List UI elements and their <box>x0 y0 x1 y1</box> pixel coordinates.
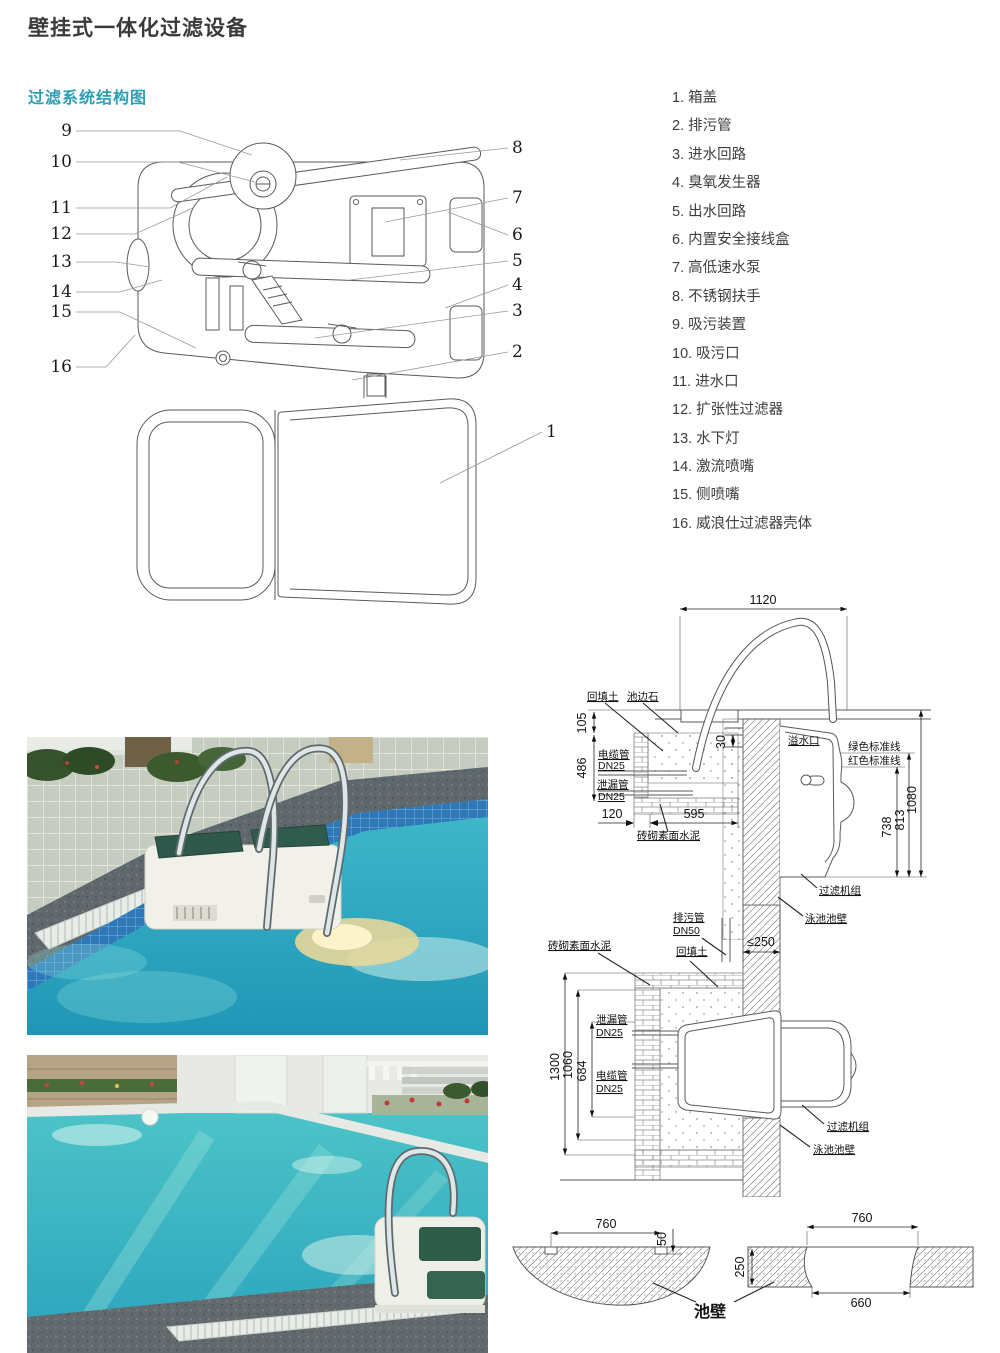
filter-housing-drawing <box>127 143 484 396</box>
label-pool-wall-bottom: 池壁 <box>694 1302 726 1321</box>
legend-item: 1. 箱盖 <box>672 84 972 112</box>
legend-item: 15. 侧喷嘴 <box>672 481 972 509</box>
right-cutout: 760 660 250 <box>733 1211 973 1310</box>
catalog-page: 壁挂式一体化过滤设备 过滤系统结构图 1. 箱盖 2. 排污管 3. 进水回路 … <box>0 0 1000 1353</box>
label-pool-wall: 泳池池壁 <box>813 1143 855 1156</box>
legend-item: 6. 内置安全接线盒 <box>672 226 972 254</box>
legend-item: 16. 威浪仕过滤器壳体 <box>672 510 972 538</box>
left-cutout: 760 50 <box>513 1217 710 1305</box>
page-title: 壁挂式一体化过滤设备 <box>28 12 248 42</box>
label-drain-dn50: DN50 <box>673 925 700 937</box>
label-backfill: 回填土 <box>587 690 619 703</box>
label-overflow: 溢水口 <box>788 734 820 747</box>
legend-item: 9. 吸污装置 <box>672 311 972 339</box>
label-leak-dn25: DN25 <box>598 791 625 803</box>
label-cable-pipe: 电缆管 <box>596 1069 628 1082</box>
dim-486: 486 <box>575 758 589 779</box>
callout-10: 10 <box>50 152 72 172</box>
section-heading: 过滤系统结构图 <box>28 84 147 108</box>
callout-12: 12 <box>50 224 72 244</box>
legend-item: 13. 水下灯 <box>672 425 972 453</box>
label-green-line: 绿色标准线 <box>848 740 901 753</box>
legend-item: 2. 排污管 <box>672 112 972 140</box>
legend-item: 10. 吸污口 <box>672 340 972 368</box>
callout-1: 1 <box>546 422 557 442</box>
legend-item: 12. 扩张性过滤器 <box>672 396 972 424</box>
callout-9: 9 <box>61 121 72 141</box>
legend-item: 5. 出水回路 <box>672 198 972 226</box>
label-filter-unit: 过滤机组 <box>819 884 861 897</box>
dim-1300: 1300 <box>548 1053 562 1081</box>
photo1-illustration <box>27 737 488 1035</box>
dim-760-right: 760 <box>852 1211 873 1225</box>
label-masonry: 砖砌素面水泥 <box>548 939 611 952</box>
photo2-illustration <box>27 1055 488 1353</box>
legend-item: 11. 进水口 <box>672 368 972 396</box>
dim-250: 250 <box>733 1257 747 1278</box>
label-leak-pipe: 泄漏管 <box>597 778 629 791</box>
dim-760-left: 760 <box>596 1217 617 1231</box>
label-red-line: 红色标准线 <box>848 754 901 767</box>
legend-item: 8. 不锈钢扶手 <box>672 283 972 311</box>
dim-595: 595 <box>684 807 705 821</box>
dim-1080: 1080 <box>905 786 919 814</box>
callout-7: 7 <box>512 188 523 208</box>
legend-item: 4. 臭氧发生器 <box>672 169 972 197</box>
label-backfill: 回填土 <box>676 945 708 958</box>
section-drawing-middle: ≤250 1300 1060 684 砖砌素面水泥 排污管 DN50 回填土 泄… <box>540 905 1000 1197</box>
legend-item: 14. 激流喷嘴 <box>672 453 972 481</box>
callout-11: 11 <box>50 198 72 218</box>
label-cable-dn25: DN25 <box>598 760 625 772</box>
dim-684: 684 <box>575 1061 589 1082</box>
callout-8: 8 <box>512 138 523 158</box>
callout-13: 13 <box>50 252 72 272</box>
structure-diagram: 9 10 11 12 13 14 15 16 8 7 6 5 4 3 2 1 <box>20 110 600 620</box>
callout-5: 5 <box>512 251 523 271</box>
callout-4: 4 <box>512 275 523 295</box>
callout-15: 15 <box>50 302 72 322</box>
parts-legend: 1. 箱盖 2. 排污管 3. 进水回路 4. 臭氧发生器 5. 出水回路 6.… <box>672 84 972 538</box>
dim-30: 30 <box>714 735 728 749</box>
pool-ball <box>142 1109 158 1125</box>
dim-120: 120 <box>602 807 623 821</box>
dim-250max: ≤250 <box>747 935 775 949</box>
dim-50: 50 <box>655 1232 669 1246</box>
label-drain-pipe: 排污管 <box>673 911 705 924</box>
label-leak-dn25: DN25 <box>596 1027 623 1039</box>
box-cover-drawing <box>137 376 476 604</box>
legend-item: 7. 高低速水泵 <box>672 254 972 282</box>
dim-660: 660 <box>851 1296 872 1310</box>
legend-item: 3. 进水回路 <box>672 141 972 169</box>
label-masonry: 砖砌素面水泥 <box>637 829 700 842</box>
photo-pool-overview <box>27 1055 488 1353</box>
photo-filter-installed <box>27 737 488 1035</box>
cutout-detail-drawings: 760 50 760 660 250 池壁 <box>510 1195 1000 1335</box>
label-filter-unit: 过滤机组 <box>827 1120 869 1133</box>
filter-unit-profile <box>780 726 854 877</box>
label-edge-stone: 池边石 <box>627 690 659 703</box>
dim-1120: 1120 <box>750 593 777 607</box>
label-leak-pipe: 泄漏管 <box>596 1013 628 1026</box>
filter-unit-plan <box>678 1011 856 1119</box>
dim-738: 738 <box>880 817 894 838</box>
callout-16: 16 <box>50 357 72 377</box>
callout-2: 2 <box>512 342 523 362</box>
callout-6: 6 <box>512 225 523 245</box>
label-cable-dn25: DN25 <box>596 1083 623 1095</box>
callout-3: 3 <box>512 301 523 321</box>
section-drawing-top: 1120 105 486 30 120 595 738 813 1080 <box>575 592 1000 940</box>
callout-14: 14 <box>50 282 72 302</box>
dim-105: 105 <box>575 713 589 734</box>
dim-1060: 1060 <box>561 1051 575 1079</box>
